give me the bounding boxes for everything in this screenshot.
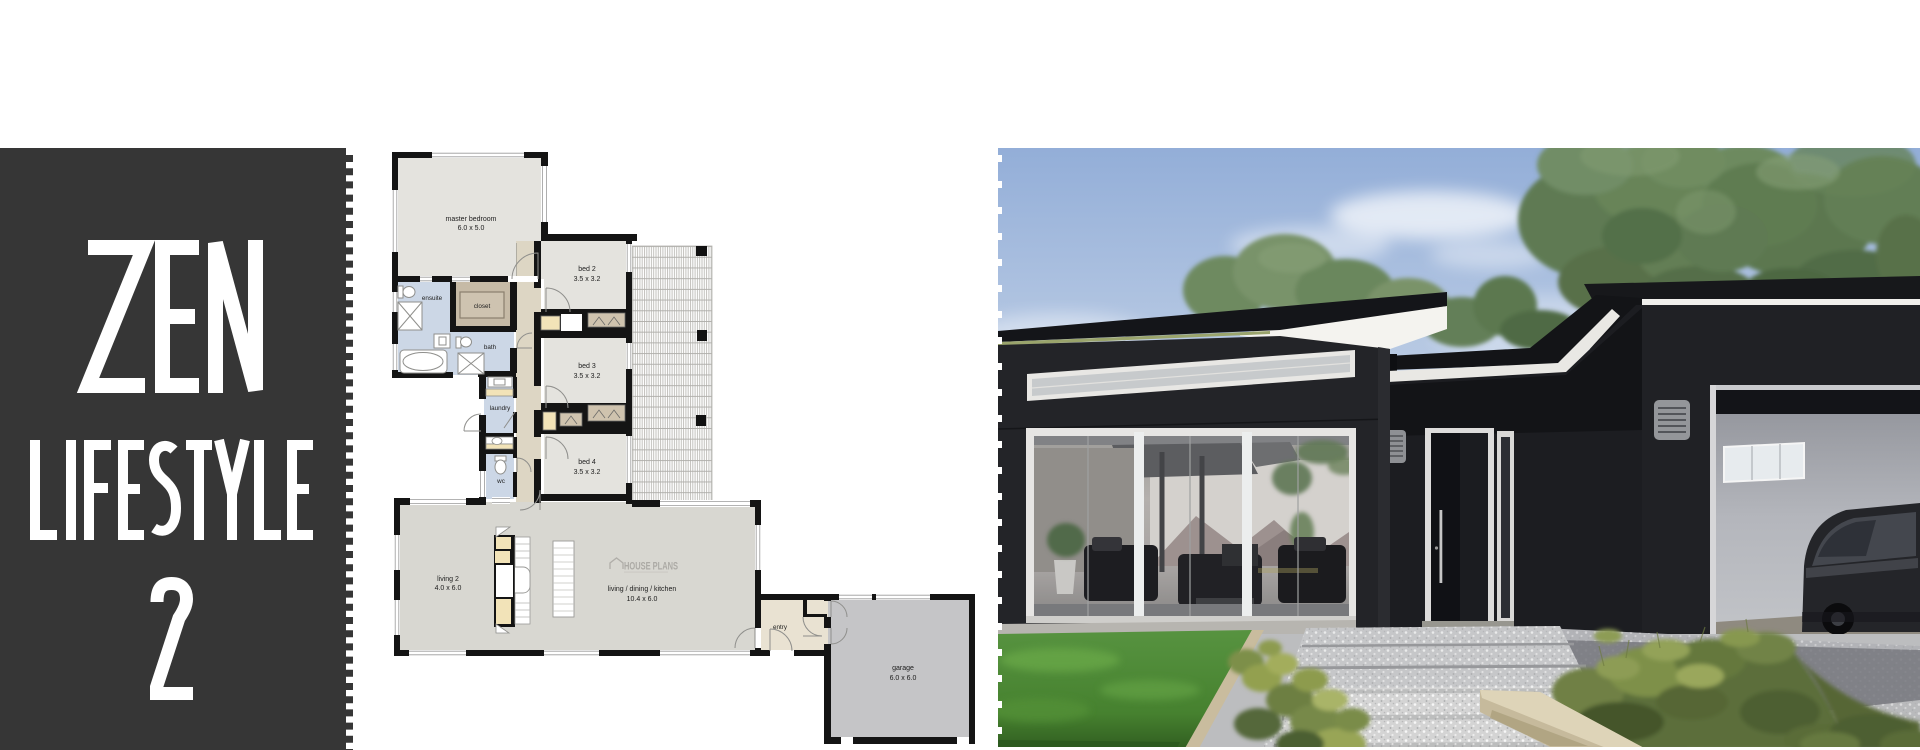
svg-text:ensuite: ensuite [422, 295, 443, 302]
svg-text:living 2: living 2 [437, 576, 459, 583]
svg-text:3.5 x 3.2: 3.5 x 3.2 [574, 373, 601, 380]
svg-text:bed 4: bed 4 [578, 459, 596, 466]
svg-text:3.5 x 3.2: 3.5 x 3.2 [574, 276, 601, 283]
svg-text:wc: wc [496, 478, 505, 485]
svg-text:master bedroom: master bedroom [446, 216, 497, 223]
svg-text:6.0 x 6.0: 6.0 x 6.0 [890, 675, 917, 682]
svg-text:laundry: laundry [490, 405, 512, 412]
svg-text:bed 2: bed 2 [578, 266, 596, 273]
svg-text:3.5 x 3.2: 3.5 x 3.2 [574, 469, 601, 476]
svg-text:entry: entry [773, 624, 788, 631]
svg-text:6.0 x 5.0: 6.0 x 5.0 [458, 225, 485, 232]
svg-text:4.0 x 6.0: 4.0 x 6.0 [435, 585, 462, 592]
svg-text:living / dining / kitchen: living / dining / kitchen [608, 586, 677, 593]
svg-text:closet: closet [474, 303, 491, 310]
svg-text:bed 3: bed 3 [578, 363, 596, 370]
svg-text:garage: garage [892, 665, 914, 672]
svg-text:HOUSE PLANS: HOUSE PLANS [624, 561, 678, 573]
svg-text:bath: bath [484, 344, 497, 351]
svg-text:10.4 x 6.0: 10.4 x 6.0 [627, 596, 658, 603]
